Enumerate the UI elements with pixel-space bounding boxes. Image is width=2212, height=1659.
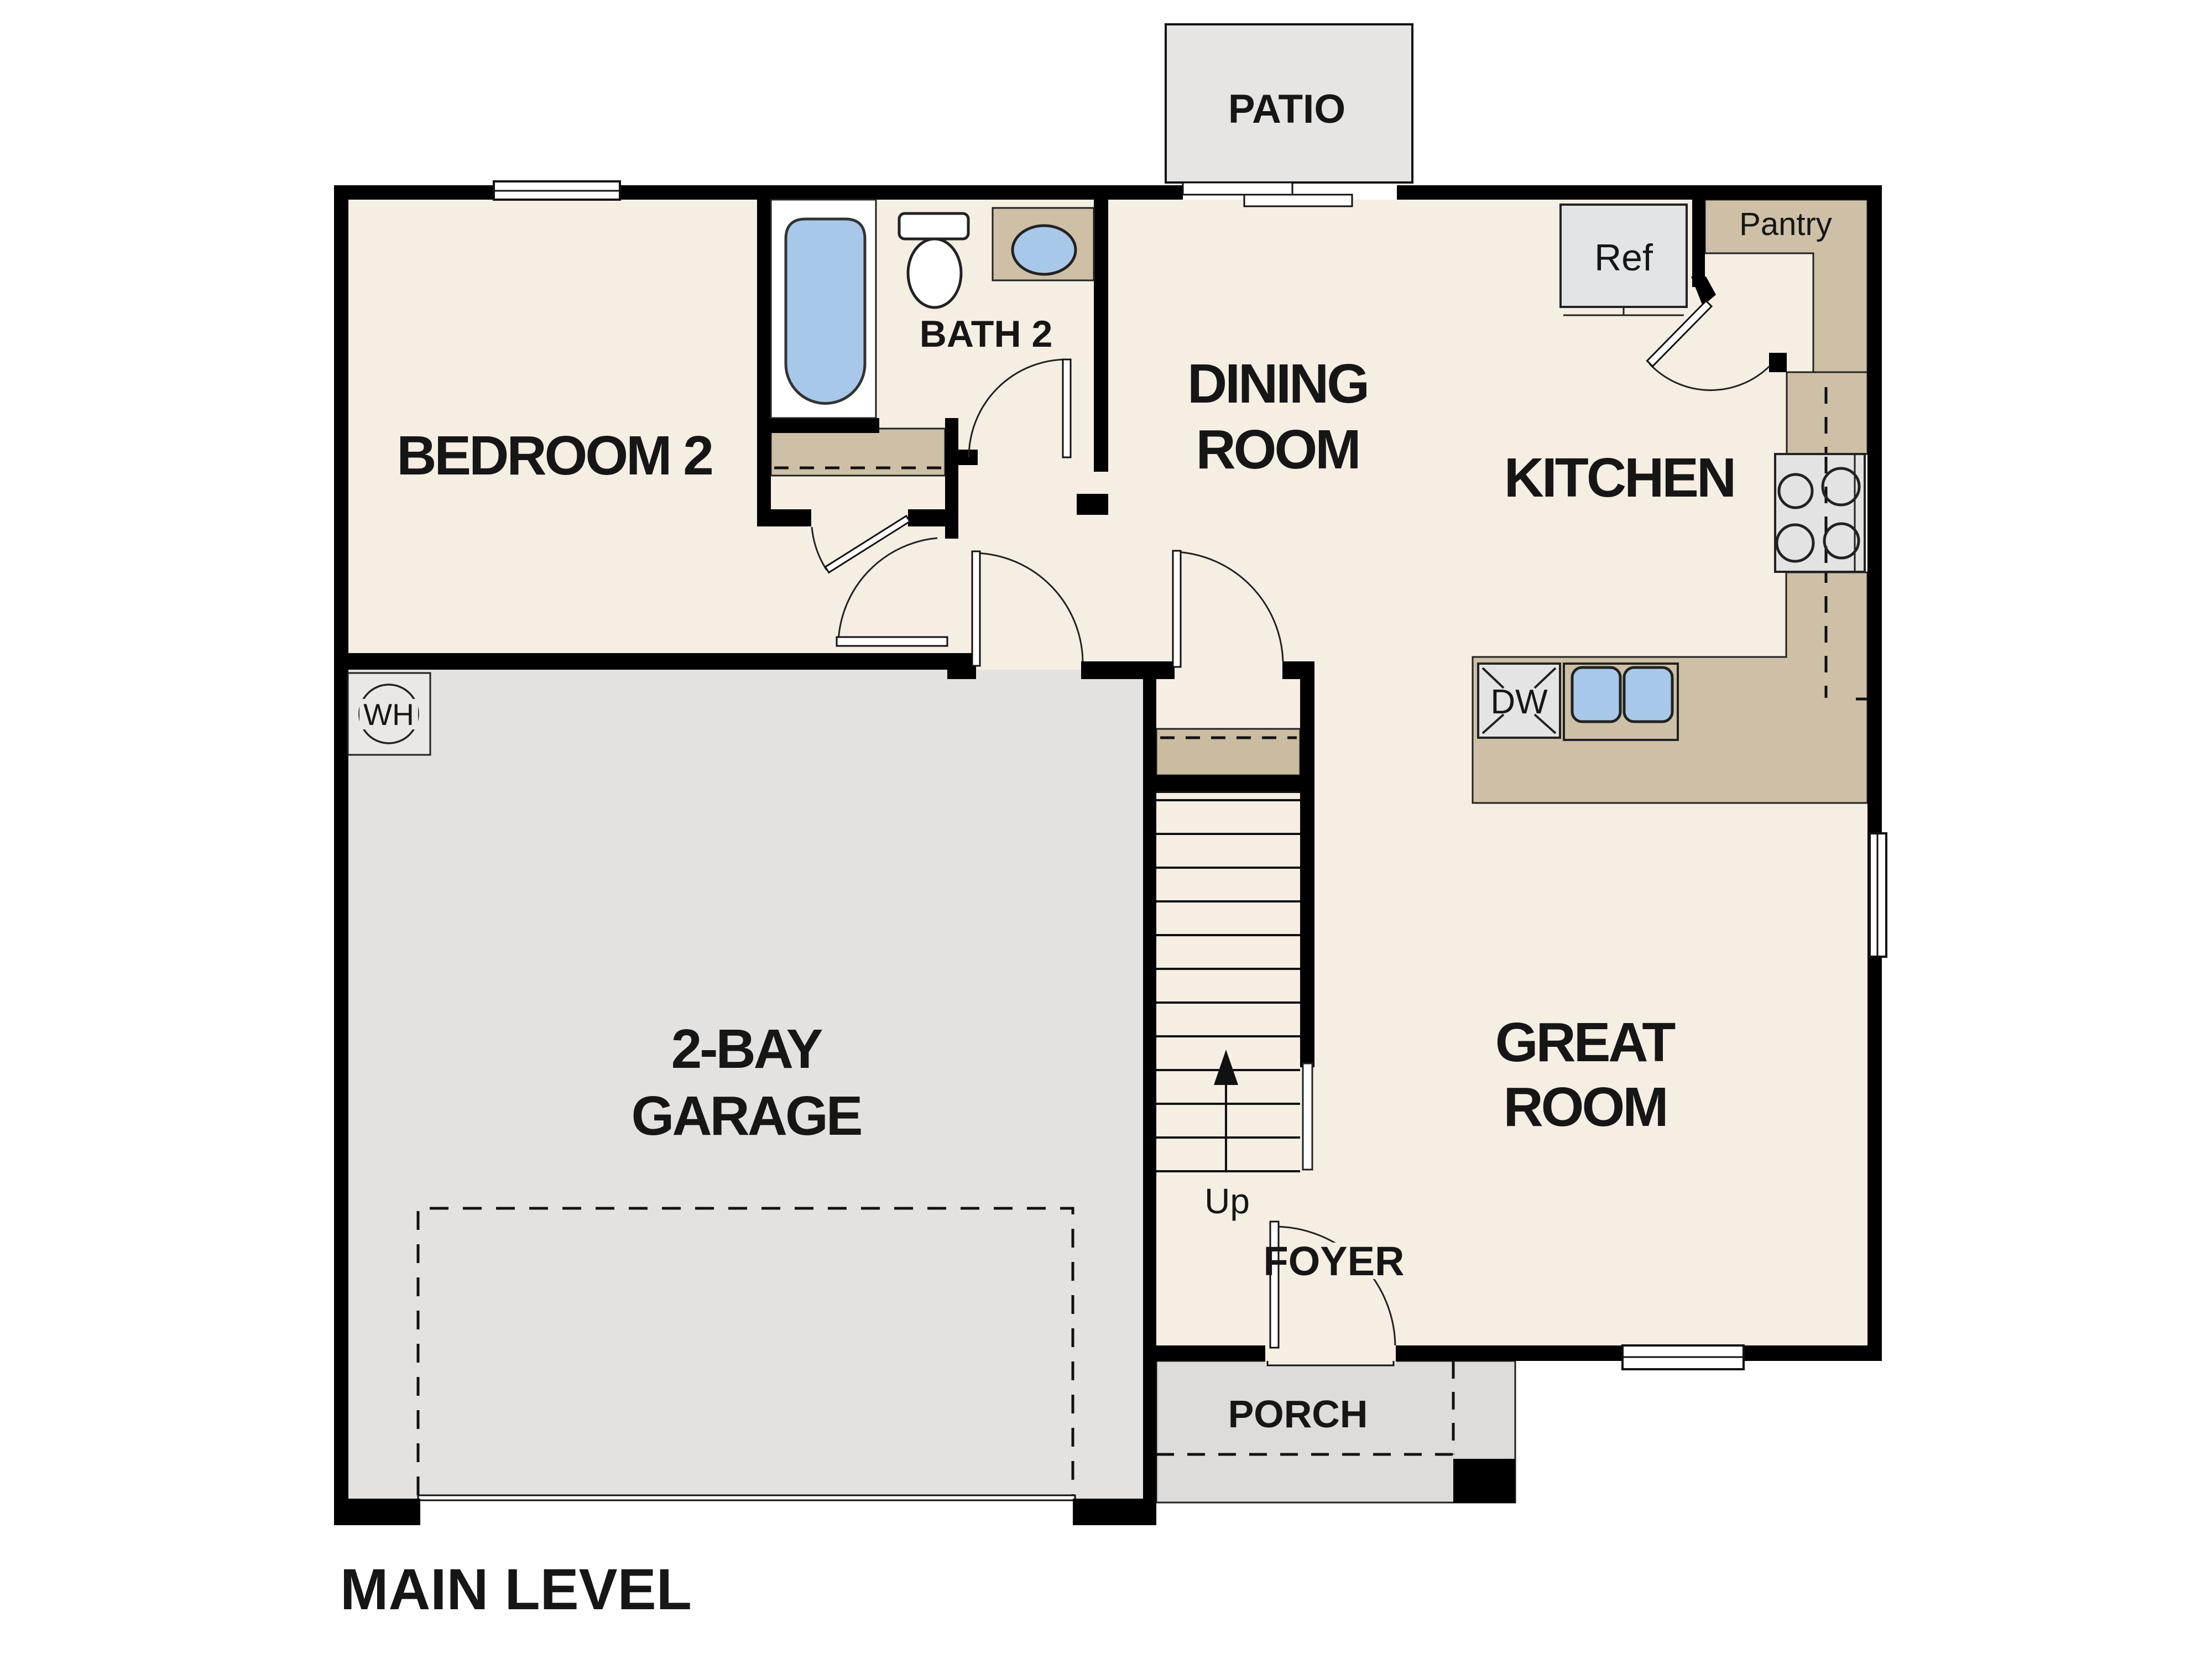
svg-text:GREAT: GREAT [1495,1011,1676,1073]
svg-text:PORCH: PORCH [1228,1392,1368,1436]
svg-text:ROOM: ROOM [1503,1076,1666,1138]
svg-text:PATIO: PATIO [1228,87,1345,132]
svg-text:ROOM: ROOM [1196,419,1359,481]
svg-text:BEDROOM 2: BEDROOM 2 [397,425,712,487]
svg-text:WH: WH [363,697,414,732]
svg-text:KITCHEN: KITCHEN [1504,447,1734,509]
svg-text:FOYER: FOYER [1264,1238,1405,1284]
svg-text:GARAGE: GARAGE [632,1085,861,1147]
svg-text:Ref: Ref [1594,237,1653,279]
svg-text:DINING: DINING [1187,353,1368,415]
svg-text:MAIN LEVEL: MAIN LEVEL [340,1557,692,1622]
svg-text:Pantry: Pantry [1739,206,1832,242]
svg-text:2-BAY: 2-BAY [671,1018,823,1080]
svg-text:BATH 2: BATH 2 [920,313,1053,355]
svg-text:DW: DW [1490,683,1548,721]
svg-text:Up: Up [1204,1181,1250,1221]
